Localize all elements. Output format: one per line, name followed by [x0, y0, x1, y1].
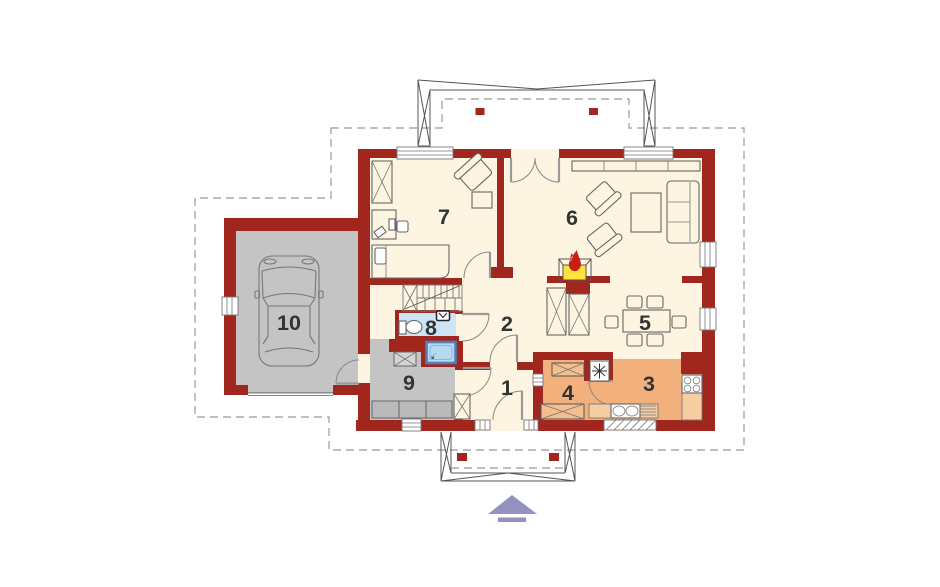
svg-text:3: 3 [643, 372, 655, 396]
svg-text:5: 5 [639, 311, 651, 335]
svg-text:9: 9 [403, 371, 415, 395]
svg-text:1: 1 [501, 376, 513, 400]
svg-text:7: 7 [438, 205, 450, 229]
svg-text:10: 10 [277, 311, 301, 335]
svg-text:6: 6 [566, 206, 578, 230]
svg-text:4: 4 [562, 381, 574, 405]
svg-text:8: 8 [425, 316, 437, 340]
svg-text:2: 2 [501, 312, 513, 336]
